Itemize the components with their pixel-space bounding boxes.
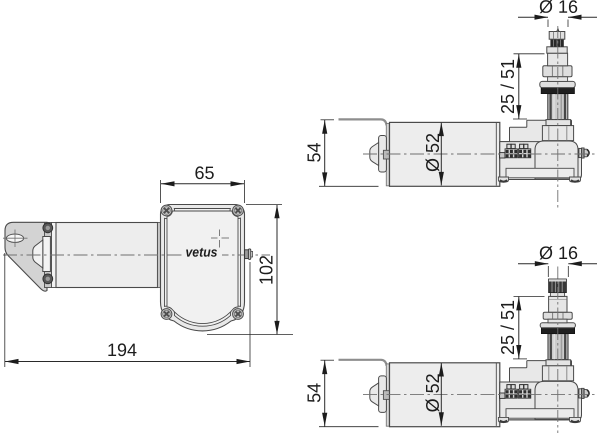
svg-text:25 / 51: 25 / 51 — [498, 300, 518, 355]
svg-text:Ø 52: Ø 52 — [423, 373, 443, 412]
svg-text:vetus: vetus — [185, 245, 217, 260]
svg-text:25 / 51: 25 / 51 — [498, 59, 518, 114]
svg-text:54: 54 — [304, 383, 324, 403]
svg-text:Ø 16: Ø 16 — [539, 0, 578, 17]
svg-text:194: 194 — [107, 340, 137, 360]
svg-text:54: 54 — [304, 142, 324, 162]
svg-text:65: 65 — [194, 163, 214, 183]
svg-text:Ø 16: Ø 16 — [539, 243, 578, 263]
svg-text:Ø 52: Ø 52 — [423, 133, 443, 172]
svg-text:102: 102 — [256, 255, 276, 285]
